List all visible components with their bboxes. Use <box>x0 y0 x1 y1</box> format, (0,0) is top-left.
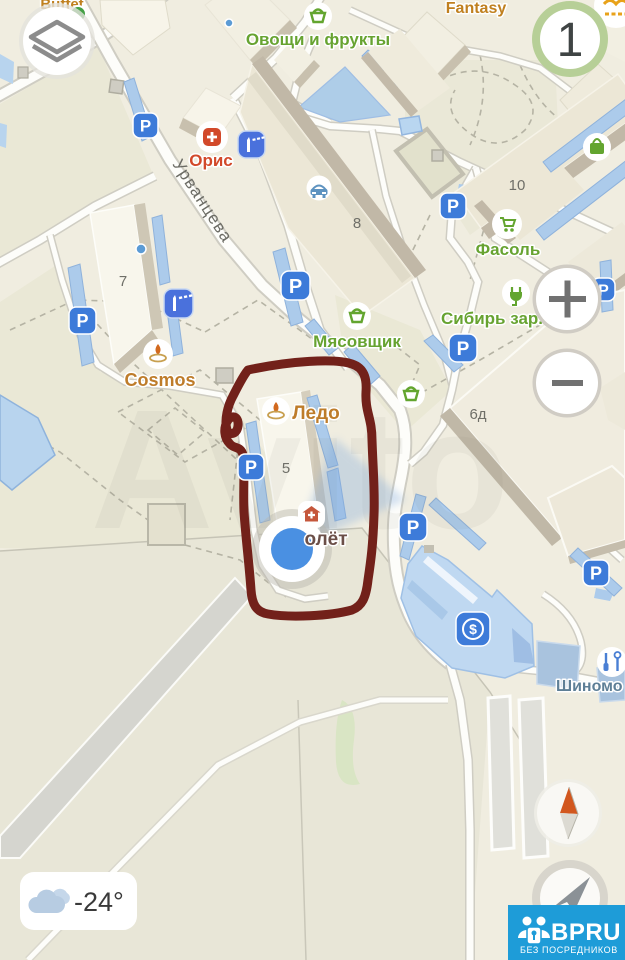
svg-text:Cosmos: Cosmos <box>124 370 195 390</box>
svg-text:$: $ <box>469 621 477 637</box>
svg-text:P: P <box>289 276 302 298</box>
svg-text:8: 8 <box>353 215 361 232</box>
svg-text:6д: 6д <box>469 406 486 423</box>
svg-text:P: P <box>590 564 602 584</box>
svg-text:Мясовщик: Мясовщик <box>313 332 401 351</box>
svg-text:Шиномо: Шиномо <box>556 678 623 695</box>
svg-text:Ледо: Ледо <box>292 403 340 424</box>
svg-text:Сибирь зар.: Сибирь зар. <box>441 309 543 328</box>
svg-text:Овощи и фрукты: Овощи и фрукты <box>246 30 390 49</box>
svg-text:Орис: Орис <box>189 151 233 170</box>
svg-text:P: P <box>407 518 420 539</box>
svg-text:олёт: олёт <box>304 529 347 550</box>
svg-text:БЕЗ ПОСРЕДНИКОВ: БЕЗ ПОСРЕДНИКОВ <box>520 945 618 955</box>
svg-text:1: 1 <box>557 14 584 67</box>
svg-text:P: P <box>457 339 470 360</box>
svg-text:P: P <box>245 458 257 478</box>
svg-text:P: P <box>447 197 459 217</box>
svg-text:BPRU: BPRU <box>551 919 621 946</box>
svg-text:Fantasy: Fantasy <box>446 0 507 17</box>
svg-text:10: 10 <box>509 177 526 194</box>
svg-text:7: 7 <box>119 273 127 290</box>
svg-text:P: P <box>140 117 151 136</box>
svg-text:5: 5 <box>282 460 290 477</box>
svg-text:P: P <box>76 311 88 331</box>
svg-text:Фасоль: Фасоль <box>476 240 541 259</box>
svg-text:-24°: -24° <box>74 887 124 917</box>
